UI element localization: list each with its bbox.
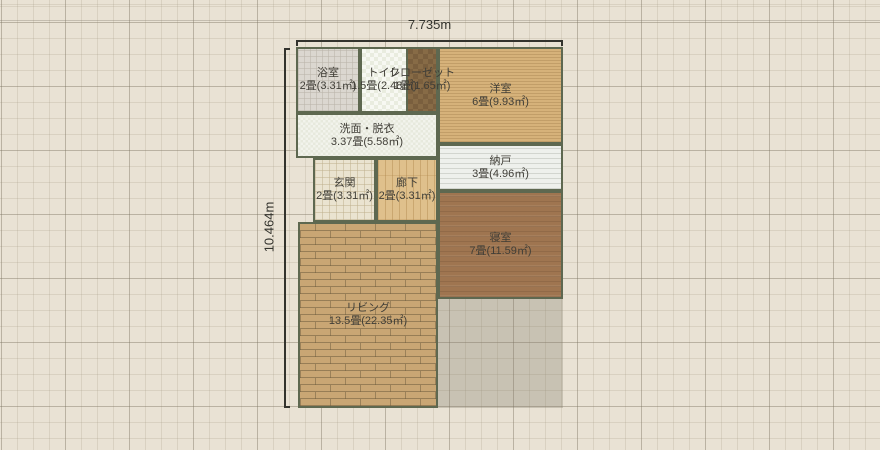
room-washroom[interactable]: 洗面・脱衣 3.37畳(5.58㎡) <box>296 113 438 158</box>
room-living-name: リビング <box>346 302 390 315</box>
room-living[interactable]: リビング 13.5畳(22.35㎡) <box>298 222 438 408</box>
room-bathroom-size: 2畳(3.31㎡) <box>300 80 357 93</box>
room-bedroom[interactable]: 寝室 7畳(11.59㎡) <box>438 191 563 299</box>
room-western-room[interactable]: 洋室 6畳(9.93㎡) <box>438 47 563 144</box>
room-western-room-size: 6畳(9.93㎡) <box>472 96 529 109</box>
floorplan-canvas[interactable]: 7.735m 10.464m 浴室 2畳(3.31㎡) トイレ 1.5畳(2.4… <box>0 0 880 450</box>
room-bathroom[interactable]: 浴室 2畳(3.31㎡) <box>296 47 360 113</box>
room-washroom-size: 3.37畳(5.58㎡) <box>331 136 403 149</box>
room-entrance[interactable]: 玄関 2畳(3.31㎡) <box>313 158 376 222</box>
room-storage[interactable]: 納戸 3畳(4.96㎡) <box>438 144 563 191</box>
width-dimension-line <box>296 40 563 46</box>
room-western-room-name: 洋室 <box>490 83 512 96</box>
building-footprint-shade <box>438 299 563 408</box>
height-dimension-label: 10.464m <box>262 202 277 253</box>
width-dimension-label: 7.735m <box>296 17 563 32</box>
room-hallway-name: 廊下 <box>396 177 418 190</box>
room-storage-name: 納戸 <box>490 155 512 168</box>
room-washroom-name: 洗面・脱衣 <box>340 123 395 136</box>
room-bedroom-size: 7畳(11.59㎡) <box>469 245 531 258</box>
room-living-size: 13.5畳(22.35㎡) <box>329 315 407 328</box>
room-entrance-size: 2畳(3.31㎡) <box>316 190 373 203</box>
room-hallway-size: 2畳(3.31㎡) <box>379 190 436 203</box>
room-hallway[interactable]: 廊下 2畳(3.31㎡) <box>376 158 438 222</box>
room-storage-size: 3畳(4.96㎡) <box>472 168 529 181</box>
room-closet[interactable]: クローゼット 1畳(1.65㎡) <box>406 47 438 113</box>
room-bathroom-name: 浴室 <box>317 67 339 80</box>
height-dimension-line <box>284 48 290 408</box>
room-entrance-name: 玄関 <box>334 177 356 190</box>
room-toilet-name: トイレ <box>368 67 401 80</box>
room-toilet[interactable]: トイレ 1.5畳(2.48㎡) <box>360 47 408 113</box>
room-bedroom-name: 寝室 <box>490 232 512 245</box>
